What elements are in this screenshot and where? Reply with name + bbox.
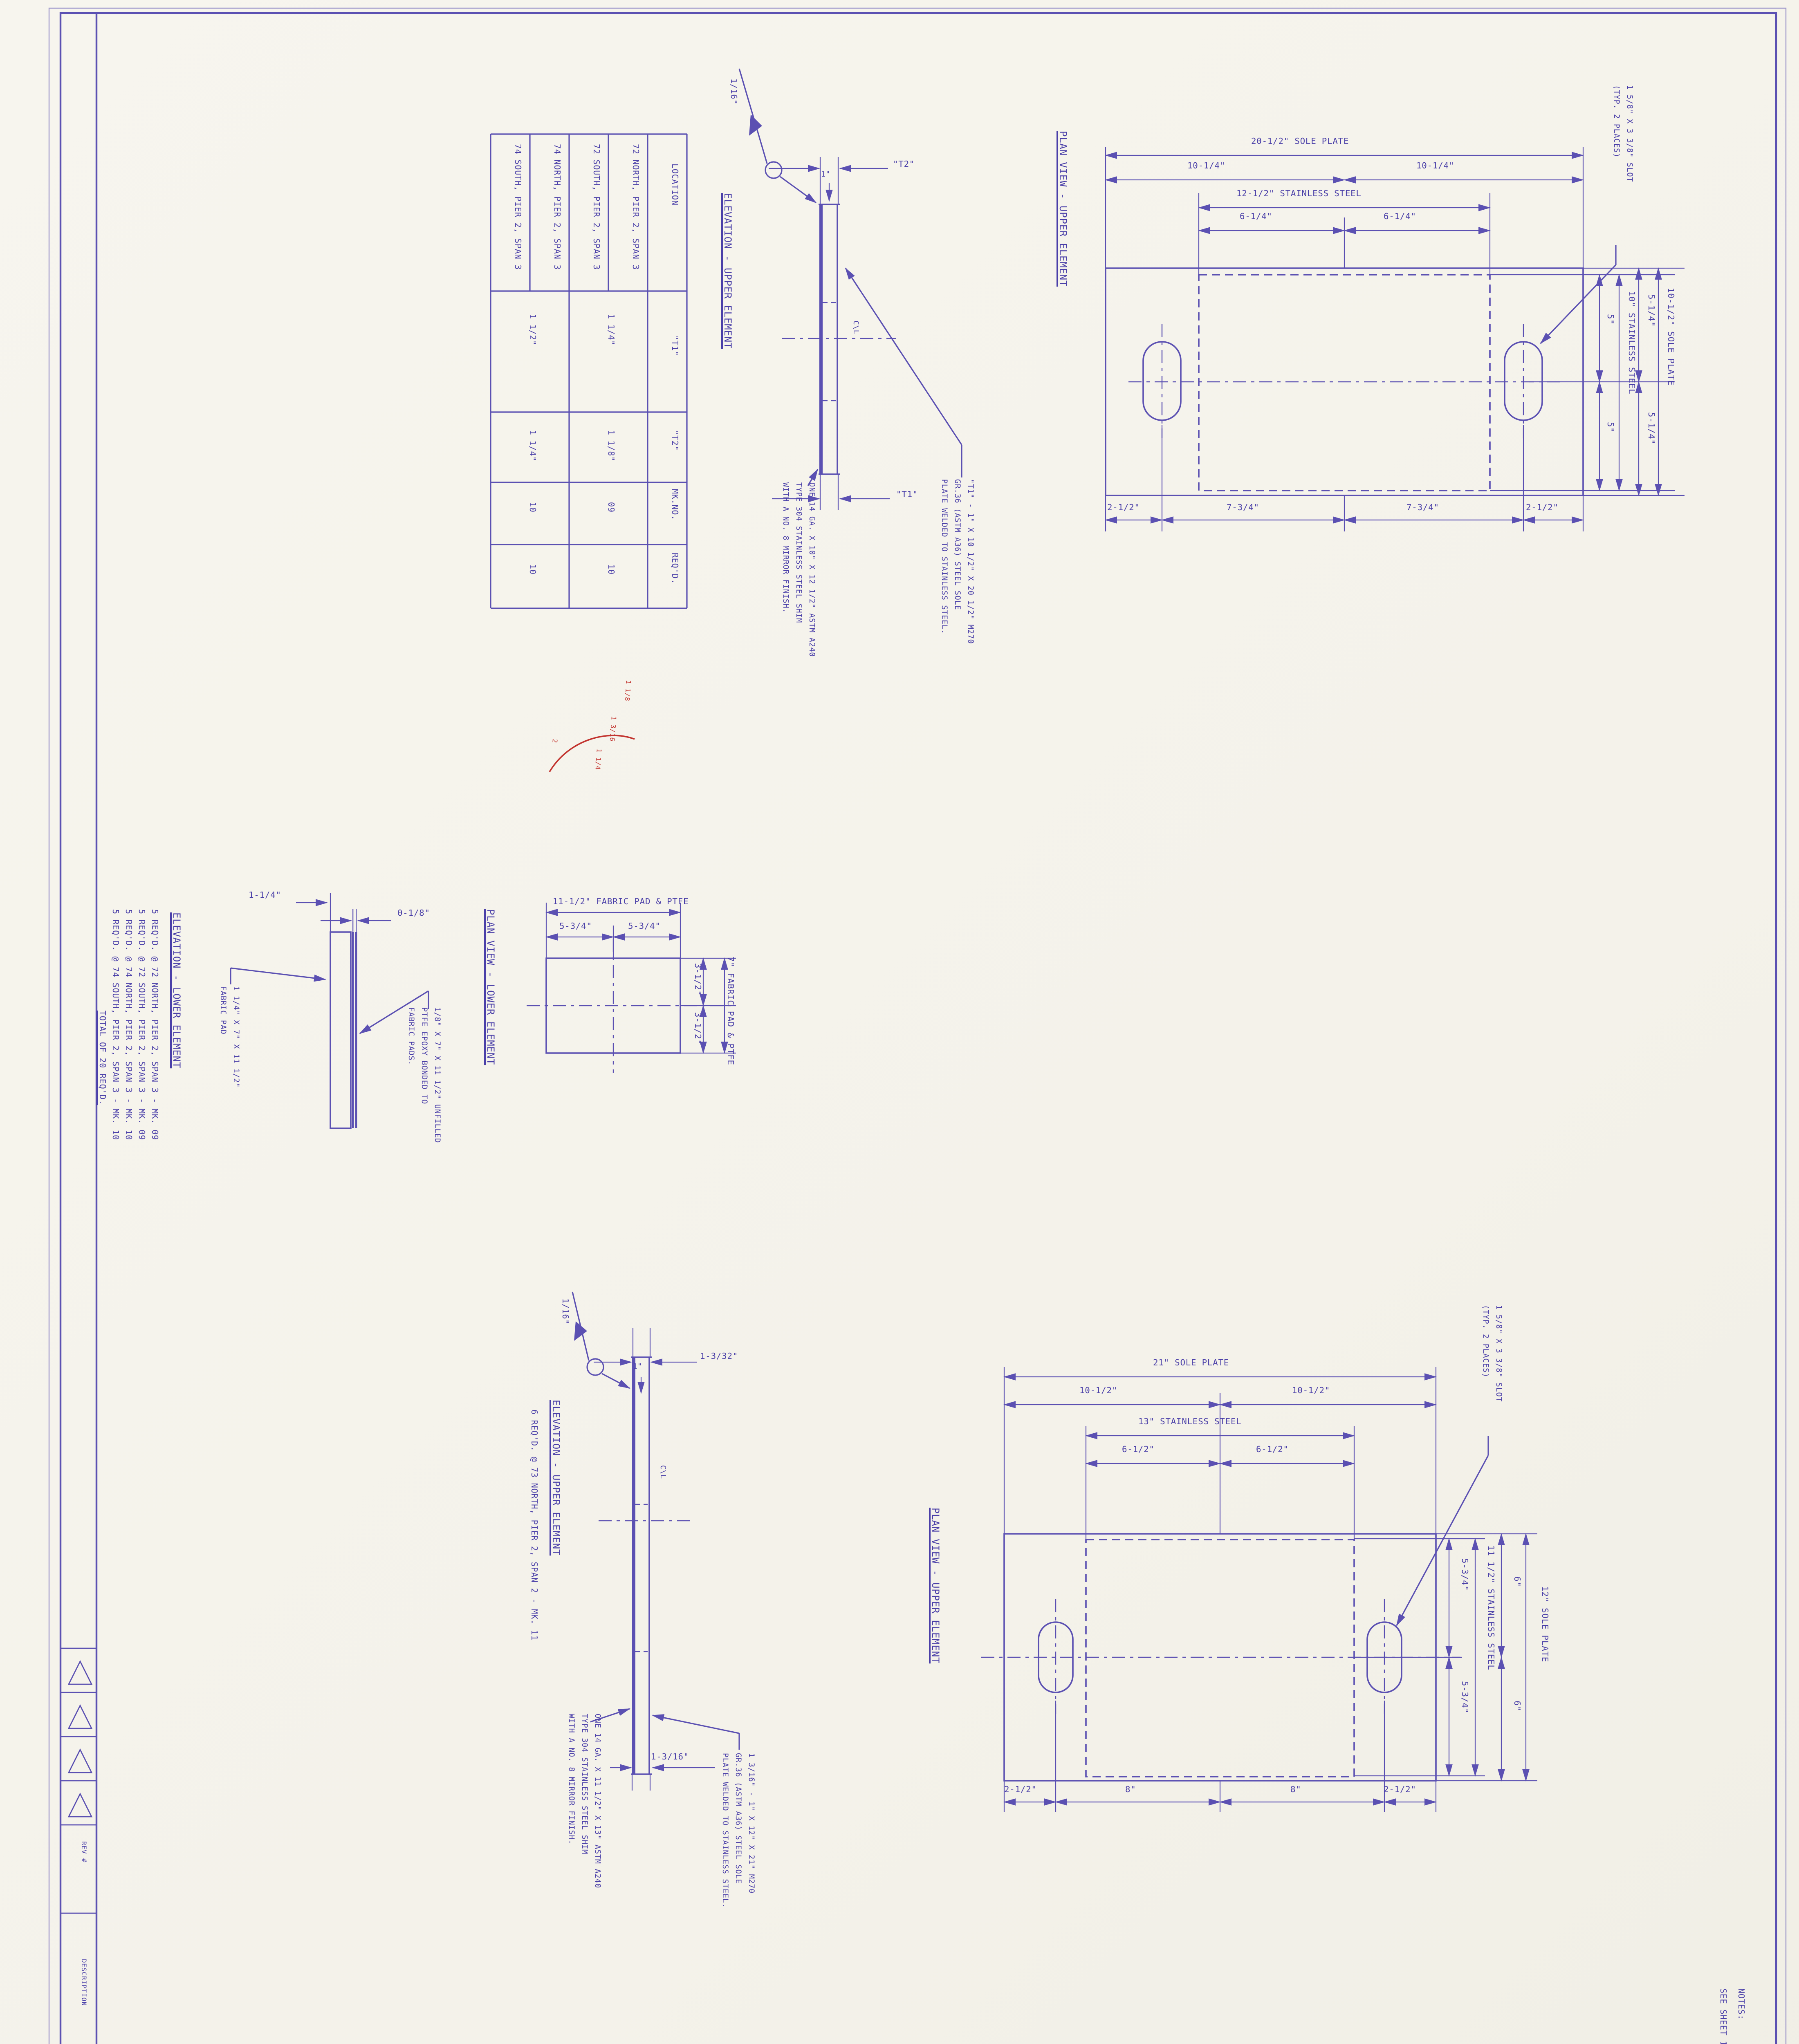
rev-strip-lines bbox=[61, 1648, 749, 2044]
centerline-label: C\L bbox=[657, 1465, 664, 1491]
dim-sole-width: 21" SOLE PLATE bbox=[1153, 1360, 1229, 1369]
ptfe-note-line: 1/8" X 7" X 11 1/2" UNFILLED bbox=[431, 1007, 438, 1174]
sole-note-line: PLATE WELDED TO STAINLESS STEEL. bbox=[718, 1753, 726, 1930]
dim-top-thickness: 1-3/32" bbox=[700, 1354, 738, 1363]
shim-note-line: WITH A NO. 8 MIRROR FINISH. bbox=[565, 1714, 572, 1864]
dim-bottom: 2-1/2" bbox=[1004, 1787, 1037, 1796]
dim-pad-half: 5-3/4" bbox=[559, 924, 592, 933]
reqd-list-line: 5 REQ'D. @ 74 NORTH, PIER 2, SPAN 3 - MK… bbox=[122, 909, 131, 1310]
reqd-list-line: 5 REQ'D. @ 72 NORTH, PIER 2, SPAN 3 - MK… bbox=[148, 909, 157, 1310]
dim-pad-height: 7" FABRIC PAD & PTFE bbox=[724, 957, 733, 1128]
plan-upper-1-outline bbox=[1106, 268, 1583, 495]
reqd-list-line: 5 REQ'D. @ 72 SOUTH, PIER 2, SPAN 3 - MK… bbox=[135, 909, 144, 1310]
dim-ptfe-thickness: 0-1/8" bbox=[397, 911, 430, 920]
dim-half-width: 10-1/4" bbox=[1416, 164, 1454, 173]
dim-t2: "T2" bbox=[893, 162, 915, 171]
red-note: 2 bbox=[550, 739, 558, 759]
reqd-list-line: 5 REQ'D. @ 74 SOUTH, PIER 2, SPAN 3 - MK… bbox=[109, 909, 118, 1310]
dim-half-width: 10-1/2" bbox=[1292, 1388, 1330, 1397]
sheet-notes-value: SEE SHEET 1 OF 5 bbox=[1717, 1988, 1725, 2044]
dim-sole-height: 12" SOLE PLATE bbox=[1538, 1586, 1547, 1741]
reqd-line: 6 REQ'D. @ 73 NORTH, PIER 2, SPAN 2 - MK… bbox=[528, 1410, 536, 1822]
dim-one-inch: 1" bbox=[633, 1365, 642, 1373]
view-title-plan-lower-1: PLAN VIEW - LOWER ELEMENT bbox=[484, 909, 494, 1184]
dim-sole-h-half: 5-1/4" bbox=[1644, 294, 1653, 353]
dim-ss-width: 12-1/2" STAINLESS STEEL bbox=[1236, 191, 1362, 200]
table-value-t2: 1 1/8" bbox=[605, 430, 613, 482]
ptfe-note-line: PTFE EPOXY BONDED TO bbox=[417, 1007, 425, 1138]
view-title-plan-upper-1: PLAN VIEW - UPPER ELEMENT bbox=[1056, 131, 1066, 433]
dim-bottom: 2-1/2" bbox=[1107, 505, 1140, 514]
sole-note-line: "T1" - 1" X 10 1/2" X 20 1/2" M270 bbox=[964, 479, 971, 667]
dim-ss-width: 13" STAINLESS STEEL bbox=[1138, 1419, 1242, 1428]
weld-size-label: 1/16" bbox=[727, 78, 736, 121]
dim-pad-half: 5-3/4" bbox=[628, 924, 661, 933]
dim-sole-h-half: 6" bbox=[1510, 1701, 1519, 1727]
dim-one-inch: 1" bbox=[821, 173, 830, 181]
shim-note-line: WITH A NO. 8 MIRROR FINISH. bbox=[779, 482, 787, 633]
slot-note-line: 1 5/8" X 3 3/8" SLOT bbox=[1623, 85, 1631, 235]
dim-sole-width: 20-1/2" SOLE PLATE bbox=[1251, 139, 1349, 148]
table-header-t1: "T1" bbox=[668, 335, 677, 384]
view-title-elevation-upper-1: ELEVATION - UPPER ELEMENT bbox=[721, 193, 731, 512]
dim-bottom: 2-1/2" bbox=[1526, 505, 1559, 514]
dim-ss-h-half: 5" bbox=[1604, 422, 1613, 448]
dim-bottom: 8" bbox=[1290, 1787, 1301, 1796]
sheet-linework bbox=[0, 0, 1799, 2044]
dim-bottom: 8" bbox=[1125, 1787, 1136, 1796]
elev-upper-1-linework bbox=[739, 69, 962, 510]
rev-strip-rev: REV # bbox=[80, 1841, 87, 1890]
table-value-reqd: 10 bbox=[526, 564, 535, 597]
slot-note-line: (TYP. 2 PLACES) bbox=[1479, 1305, 1487, 1423]
table-header-reqd: REQ'D. bbox=[668, 553, 677, 608]
dim-half-width: 10-1/4" bbox=[1187, 164, 1225, 173]
pad-note-line: FABRIC PAD bbox=[216, 986, 224, 1065]
sheet-notes-label: NOTES: bbox=[1735, 1988, 1743, 2044]
plan-upper-2-dims bbox=[1004, 1367, 1537, 1812]
dim-bottom: 7-3/4" bbox=[1227, 505, 1259, 514]
rev-strip-description: DESCRIPTION bbox=[80, 1959, 87, 2044]
drawing-sheet: LOCATION "T1" "T2" MK.NO. REQ'D. 72 NORT… bbox=[0, 0, 1799, 2044]
sheet-border bbox=[49, 8, 1786, 2044]
dim-ss-h-half: 5" bbox=[1604, 314, 1613, 340]
centerline-label: C\L bbox=[850, 320, 857, 347]
slot-note-line: 1 5/8" X 3 3/8" SLOT bbox=[1492, 1305, 1500, 1455]
weld-size-label: 1/16" bbox=[559, 1298, 568, 1341]
dim-sole-height: 10-1/2" SOLE PLATE bbox=[1664, 288, 1673, 476]
dim-pad-width: 11-1/2" FABRIC PAD & PTFE bbox=[553, 899, 689, 908]
dim-ss-h-half: 5-3/4" bbox=[1458, 1681, 1467, 1740]
shim-note-line: TYPE 304 STAINLESS STEEL SHIM bbox=[792, 482, 800, 646]
dim-ss-half: 6-1/4" bbox=[1240, 214, 1272, 223]
sole-note-line: GR.36 (ASTM A36) STEEL SOLE bbox=[951, 479, 958, 634]
slot-note-line: (TYP. 2 PLACES) bbox=[1610, 85, 1617, 203]
view-title-plan-upper-2: PLAN VIEW - UPPER ELEMENT bbox=[929, 1508, 939, 1810]
pad-note-line: 1 1/4" X 7" X 11 1/2" bbox=[229, 986, 237, 1120]
dim-bottom-thickness: 1-3/16" bbox=[651, 1755, 689, 1764]
dim-ss-half: 6-1/2" bbox=[1256, 1447, 1289, 1456]
dim-ss-h-half: 5-3/4" bbox=[1458, 1558, 1467, 1617]
view-title-elevation-lower-1: ELEVATION - LOWER ELEMENT bbox=[170, 912, 180, 1187]
dim-half-width: 10-1/2" bbox=[1079, 1388, 1117, 1397]
reqd-total: TOTAL OF 20 REQ'D. bbox=[96, 1011, 105, 1190]
table-value-reqd: 10 bbox=[605, 564, 613, 597]
table-row-location: 74 NORTH, PIER 2, SPAN 3 bbox=[551, 144, 559, 288]
table-row-location: 72 SOUTH, PIER 2, SPAN 3 bbox=[590, 144, 599, 288]
dim-t1: "T1" bbox=[896, 492, 918, 501]
ptfe-note-line: FABRIC PADS. bbox=[404, 1007, 412, 1089]
table-value-t2: 1 1/4" bbox=[526, 430, 535, 482]
dim-ss-height: 10" STAINLESS STEEL bbox=[1625, 291, 1634, 474]
table-value-mk: 10 bbox=[526, 502, 535, 535]
table-row-location: 74 SOUTH, PIER 2, SPAN 3 bbox=[511, 144, 520, 288]
shim-note-line: ONE 14 GA. X 11 1/2" X 13" ASTM A240 bbox=[591, 1714, 599, 1907]
sole-note-line: 1 3/16" - 1" X 12" X 21" M270 bbox=[745, 1753, 752, 1930]
dim-pad-h-half: 3-1/2" bbox=[691, 1012, 700, 1055]
dim-sole-h-half: 6" bbox=[1510, 1576, 1519, 1602]
shim-note-line: TYPE 304 STAINLESS STEEL SHIM bbox=[578, 1714, 585, 1877]
sole-note-line: GR.36 (ASTM A36) STEEL SOLE bbox=[731, 1753, 739, 1908]
table-value-mk: 09 bbox=[605, 502, 613, 535]
sole-note-line: PLATE WELDED TO STAINLESS STEEL. bbox=[938, 479, 945, 651]
table-row-location: 72 NORTH, PIER 2, SPAN 3 bbox=[629, 144, 638, 288]
table-value-t1: 1 1/4" bbox=[605, 314, 613, 366]
table-header-t2: "T2" bbox=[668, 430, 677, 479]
plan-upper-1-dims bbox=[1106, 147, 1685, 531]
table-header-location: LOCATION bbox=[668, 164, 677, 294]
table-header-mk: MK.NO. bbox=[668, 489, 677, 545]
elev-lower-1-linework bbox=[231, 893, 428, 1128]
dim-pad-thickness: 1-1/4" bbox=[249, 893, 281, 902]
dim-ss-half: 6-1/2" bbox=[1122, 1447, 1155, 1456]
dim-pad-h-half: 3-1/2" bbox=[691, 963, 700, 1006]
dim-bottom: 2-1/2" bbox=[1384, 1787, 1416, 1796]
dim-sole-h-half: 5-1/4" bbox=[1644, 412, 1653, 471]
table-value-t1: 1 1/2" bbox=[526, 314, 535, 366]
shim-note-line: ONE 14 GA. X 10" X 12 1/2" ASTM A240 bbox=[805, 482, 813, 675]
dim-bottom: 7-3/4" bbox=[1406, 505, 1439, 514]
dim-ss-half: 6-1/4" bbox=[1384, 214, 1416, 223]
dim-ss-height: 11 1/2" STAINLESS STEEL bbox=[1484, 1545, 1493, 1758]
view-title-elevation-upper-2: ELEVATION - UPPER ELEMENT bbox=[549, 1400, 559, 1714]
